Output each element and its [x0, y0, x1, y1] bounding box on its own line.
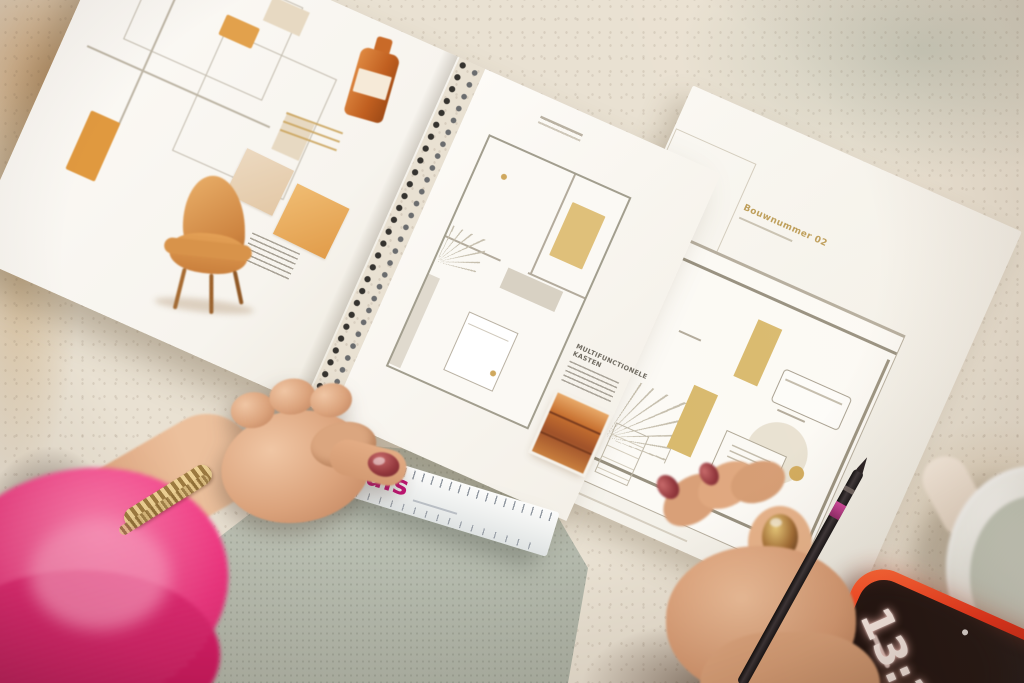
plan-wall: [688, 240, 904, 338]
page-title-lines: [537, 116, 583, 143]
furniture-block: [733, 319, 782, 386]
plan-accent-dot: [500, 173, 508, 181]
sheet-title: Bouwnummer 02: [742, 203, 829, 249]
plan-wall: [680, 256, 897, 355]
plan-label-line: [679, 330, 702, 341]
nail-glint: [770, 518, 782, 527]
photo-scene: Bouwnummer 02: [0, 0, 1024, 683]
chair-photo: [146, 170, 277, 317]
chair-leg: [233, 271, 243, 305]
grey-strip: [389, 274, 440, 368]
left-hand: [210, 366, 420, 551]
staircase-symbol: [437, 225, 490, 278]
pen-metal-ring: [843, 485, 855, 495]
orange-furniture-block: [65, 110, 120, 181]
bed-symbol: [443, 311, 518, 391]
